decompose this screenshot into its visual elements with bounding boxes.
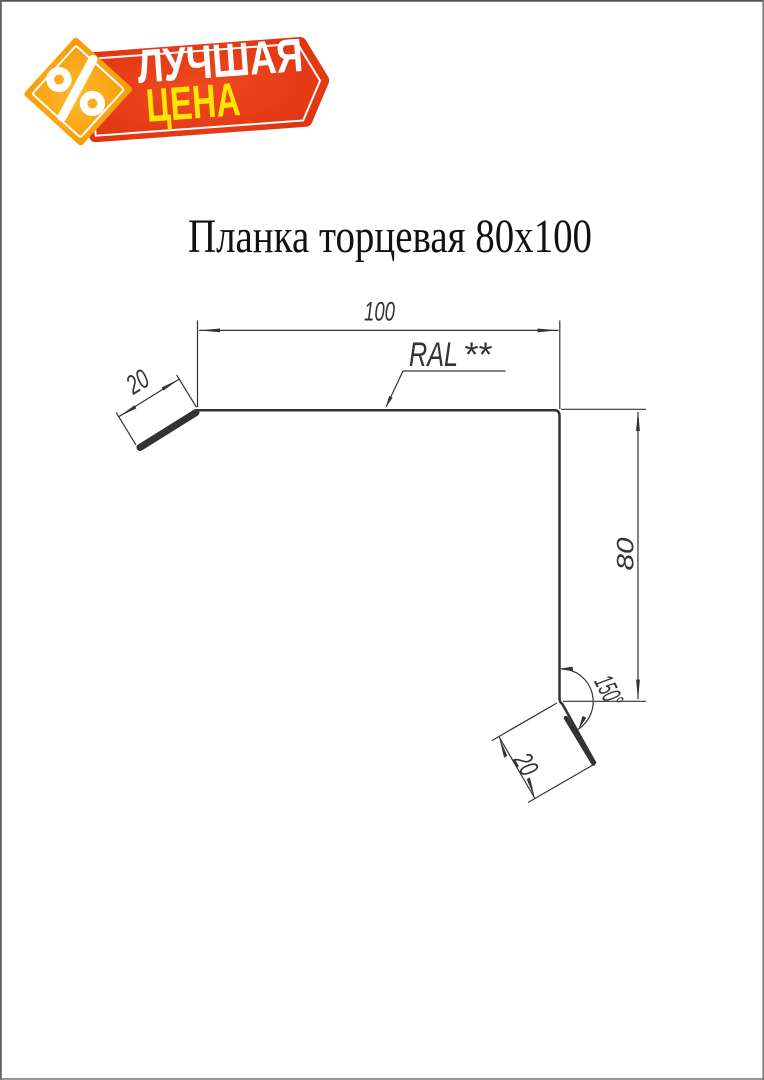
svg-text:100: 100	[364, 297, 395, 327]
svg-text:RAL: RAL	[409, 336, 458, 374]
svg-text:80: 80	[613, 537, 640, 570]
svg-text:Планка торцевая 80x100: Планка торцевая 80x100	[188, 211, 592, 263]
svg-text:ЦЕНА: ЦЕНА	[144, 72, 242, 132]
svg-text:**: **	[463, 336, 493, 374]
